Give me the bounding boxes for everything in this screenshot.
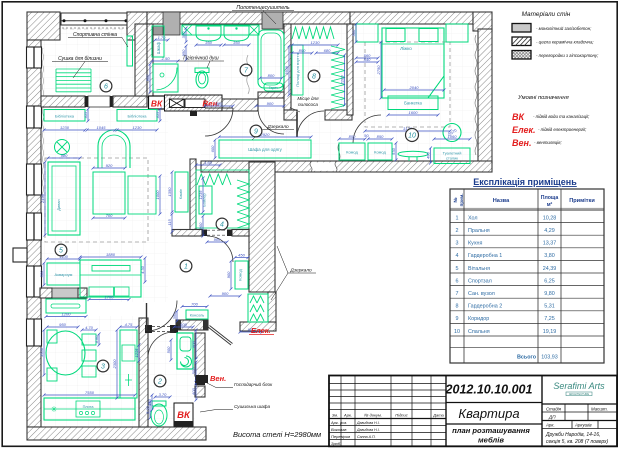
svg-text:450: 450 [238,252,245,257]
svg-text:Вен.: Вен. [210,374,226,383]
svg-text:1235: 1235 [134,348,139,358]
svg-text:Зроб.: Зроб. [331,441,341,446]
svg-text:Площа: Площа [541,195,559,201]
svg-text:ВК: ВК [151,99,163,109]
svg-text:1045: 1045 [97,125,107,130]
svg-text:Висота стелі Н=2980мм: Висота стелі Н=2980мм [233,430,321,439]
svg-text:Консоль: Консоль [190,314,205,318]
svg-text:415: 415 [83,111,88,118]
svg-text:2012.10.10.001: 2012.10.10.001 [445,383,533,397]
svg-text:600: 600 [191,387,196,394]
svg-text:13,37: 13,37 [543,241,557,247]
svg-text:1230: 1230 [133,125,143,130]
svg-text:ВК: ВК [512,112,525,122]
svg-text:Диван: Диван [56,199,61,210]
svg-text:Назва: Назва [493,198,510,204]
svg-text:Комод: Комод [346,150,358,155]
svg-text:900: 900 [222,291,229,296]
svg-text:350: 350 [205,40,212,45]
svg-text:6,25: 6,25 [544,278,555,284]
svg-text:Дзеркало: Дзеркало [266,124,289,130]
svg-text:1880: 1880 [106,252,116,257]
svg-text:890: 890 [299,48,306,53]
svg-text:Сушка для білизни: Сушка для білизни [58,56,102,62]
svg-text:4: 4 [456,253,459,259]
svg-text:Давидова Н.І.: Давидова Н.І. [356,428,380,432]
svg-text:Спортзал: Спортзал [468,278,492,284]
svg-text:600: 600 [210,145,215,152]
svg-text:Кухня: Кухня [468,241,483,247]
svg-text:4.30: 4.30 [140,265,145,274]
svg-text:900: 900 [214,237,221,242]
svg-text:Полотенцесушитель: Полотенцесушитель [236,5,289,11]
svg-text:Місце для: Місце для [297,96,319,101]
svg-text:8: 8 [312,74,316,81]
svg-text:130: 130 [147,398,152,405]
svg-text:Комод: Комод [238,268,243,280]
svg-text:Перевірив: Перевірив [331,434,350,439]
svg-text:1508: 1508 [284,65,289,75]
svg-text:350: 350 [172,312,177,319]
svg-text:меблів: меблів [478,436,504,445]
svg-text:пилососа: пилососа [298,102,318,107]
svg-text:6: 6 [456,278,459,284]
svg-text:10: 10 [408,133,416,140]
svg-text:-1.50: -1.50 [160,56,170,61]
svg-text:- монолітний залізобетон;: - монолітний залізобетон; [536,26,592,31]
svg-text:Підпис: Підпис [395,413,407,418]
svg-text:4,29: 4,29 [544,228,555,234]
svg-text:Елек.: Елек. [512,125,536,135]
svg-text:Спортивна стінка: Спортивна стінка [73,32,117,38]
svg-text:7,25: 7,25 [544,316,555,322]
svg-text:850: 850 [377,134,384,139]
svg-text:Арк.: Арк. [545,423,555,428]
svg-text:680: 680 [324,48,331,53]
svg-text:10: 10 [454,329,460,335]
svg-text:Пральня: Пральня [468,228,490,234]
svg-text:- підвід електроенергії;: - підвід електроенергії; [538,127,587,132]
svg-text:500: 500 [191,367,196,374]
svg-text:3: 3 [101,364,105,371]
svg-text:2: 2 [157,379,162,386]
svg-text:3,80: 3,80 [544,253,555,259]
svg-text:350: 350 [181,31,186,38]
svg-text:6: 6 [104,84,108,91]
svg-text:Спальня: Спальня [468,329,490,335]
svg-text:Полиці для взуття: Полиці для взуття [295,53,300,87]
svg-text:530: 530 [391,147,396,154]
svg-text:Дружби Народів, 14-16,: Дружби Народів, 14-16, [545,432,601,438]
svg-text:Давидова Н.І.: Давидова Н.І. [356,421,380,425]
svg-text:4.75: 4.75 [125,322,134,327]
svg-text:5: 5 [59,248,63,255]
svg-text:прим.: прим. [459,193,464,206]
svg-text:103,93: 103,93 [541,355,558,361]
svg-text:4.60: 4.60 [94,335,99,344]
svg-text:ARCHITECTURE: ARCHITECTURE [569,392,590,396]
svg-text:Коридор: Коридор [468,316,489,322]
svg-text:Дзеркало: Дзеркало [289,268,312,274]
svg-text:- цегла керамічна кладочна;: - цегла керамічна кладочна; [536,40,594,45]
svg-text:600: 600 [180,322,187,327]
svg-text:№: № [453,197,458,202]
svg-text:✳: ✳ [51,405,58,414]
svg-text:900: 900 [145,74,150,81]
svg-text:Господарчий блок: Господарчий блок [234,381,273,387]
svg-text:2: 2 [456,228,459,234]
svg-text:секція 5, кв. 208 (7 поверх): секція 5, кв. 208 (7 поверх) [546,439,608,445]
svg-text:2430: 2430 [40,193,45,204]
svg-text:Сан. вузол: Сан. вузол [468,291,495,297]
svg-text:1500: 1500 [39,347,44,357]
svg-text:19,19: 19,19 [543,329,557,335]
svg-text:7: 7 [456,291,459,297]
svg-text:900: 900 [198,222,203,229]
svg-text:м²: м² [547,202,553,208]
svg-text:1230: 1230 [311,40,321,45]
svg-text:1350: 1350 [167,187,172,197]
svg-text:Бібліотека: Бібліотека [127,114,147,119]
svg-text:Serafimi Arts: Serafimi Arts [553,381,605,391]
svg-text:1.70: 1.70 [158,35,167,40]
svg-text:Комод: Комод [374,150,386,155]
svg-text:Гаряч: Гаряч [269,86,279,90]
svg-text:Ліжко: Ліжко [400,46,412,51]
svg-text:24,39: 24,39 [543,266,557,272]
svg-text:540: 540 [364,57,371,62]
svg-text:Експлікація приміщень: Експлікація приміщень [473,177,577,187]
svg-text:Санна А.П.: Санна А.П. [357,435,376,439]
svg-text:9: 9 [456,316,459,322]
svg-text:Гігієнічний душ: Гігієнічний душ [183,55,219,62]
svg-text:1230: 1230 [60,125,70,130]
svg-text:700: 700 [191,301,198,306]
svg-text:480: 480 [425,151,430,158]
svg-text:800: 800 [268,73,275,78]
svg-text:Хол: Хол [468,215,478,221]
svg-text:Аквариум: Аквариум [55,272,73,277]
svg-text:Стадія: Стадія [546,407,562,412]
svg-text:Вітальня: Вітальня [468,266,490,272]
svg-text:2100: 2100 [339,75,344,86]
svg-text:Примітки: Примітки [569,198,595,204]
svg-text:Квартира: Квартира [458,406,519,421]
svg-text:- підвід води та каналізації;: - підвід води та каналізації; [533,114,590,119]
svg-text:план розташування: план розташування [452,426,530,435]
svg-text:900: 900 [267,101,274,106]
svg-text:Матеріали стін: Матеріали стін [522,10,571,18]
svg-text:5: 5 [456,266,459,272]
svg-text:Умовні позначення: Умовні позначення [517,95,569,101]
svg-text:Масшт.: Масшт. [591,407,608,412]
svg-text:столик: столик [446,156,458,161]
svg-text:9,80: 9,80 [544,291,555,297]
svg-text:350: 350 [233,40,240,45]
svg-text:980: 980 [61,153,68,158]
svg-text:500: 500 [351,29,356,36]
svg-text:Шафа для одягу: Шафа для одягу [248,147,282,152]
svg-text:700: 700 [106,213,113,218]
svg-text:Гардеробна 2: Гардеробна 2 [468,304,502,310]
svg-text:1: 1 [184,264,188,271]
svg-text:600: 600 [191,340,196,347]
svg-text:ДП: ДП [548,415,556,420]
svg-text:№ докум.: № докум. [364,413,382,418]
svg-text:Зм.: Зм. [332,413,338,418]
svg-text:1.60: 1.60 [204,160,213,165]
svg-text:4: 4 [220,222,224,229]
svg-text:1600: 1600 [409,110,419,115]
svg-text:920: 920 [106,163,113,168]
svg-text:900: 900 [226,271,231,278]
svg-text:2040: 2040 [409,85,420,90]
svg-text:1: 1 [456,215,459,221]
svg-text:3: 3 [456,241,459,247]
svg-text:Елек.: Елек. [251,326,271,335]
svg-text:ВК: ВК [177,410,191,421]
svg-text:1200: 1200 [62,311,72,316]
svg-text:Всього: Всього [517,355,537,361]
svg-text:Арк.: Арк. [343,413,352,418]
svg-text:1235: 1235 [198,190,203,200]
svg-text:1000: 1000 [155,190,160,200]
svg-text:50: 50 [364,133,369,138]
svg-text:Бібліотека: Бібліотека [55,114,75,119]
svg-text:3.70: 3.70 [159,392,168,397]
svg-text:2300: 2300 [112,359,117,370]
svg-text:7550: 7550 [85,390,95,395]
svg-text:8: 8 [456,304,459,310]
svg-text:5,31: 5,31 [544,304,555,310]
svg-text:850: 850 [349,134,356,139]
svg-text:Аркушів: Аркушів [574,423,592,428]
svg-text:4.70: 4.70 [85,325,94,330]
svg-text:9: 9 [254,129,258,136]
svg-text:1700: 1700 [105,294,115,299]
svg-text:Виконав: Виконав [331,427,347,432]
svg-text:Арк. роз.: Арк. роз. [330,420,347,425]
svg-text:Плита: Плита [83,405,95,409]
svg-text:500: 500 [39,270,44,277]
svg-text:1060: 1060 [448,134,458,139]
svg-text:2750: 2750 [376,65,381,76]
svg-text:415: 415 [155,111,160,118]
svg-text:Шкаф: Шкаф [156,42,161,55]
svg-text:950: 950 [59,322,66,327]
svg-text:Сушильна шафа: Сушильна шафа [234,404,271,409]
svg-text:Камін: Камін [178,189,183,199]
svg-text:- перегородки з гіпсокартону;: - перегородки з гіпсокартону; [536,53,599,58]
svg-text:.115: .115 [167,218,172,226]
svg-text:Вен.: Вен. [512,138,531,148]
svg-text:Банкетка: Банкетка [404,101,422,106]
svg-text:Дата: Дата [432,413,444,418]
svg-text:900: 900 [216,101,223,106]
svg-text:Гардеробна 1: Гардеробна 1 [468,253,502,259]
svg-text:10,28: 10,28 [543,215,557,221]
svg-text:- вентиляція;: - вентиляція; [534,140,562,145]
svg-text:500: 500 [166,346,171,353]
